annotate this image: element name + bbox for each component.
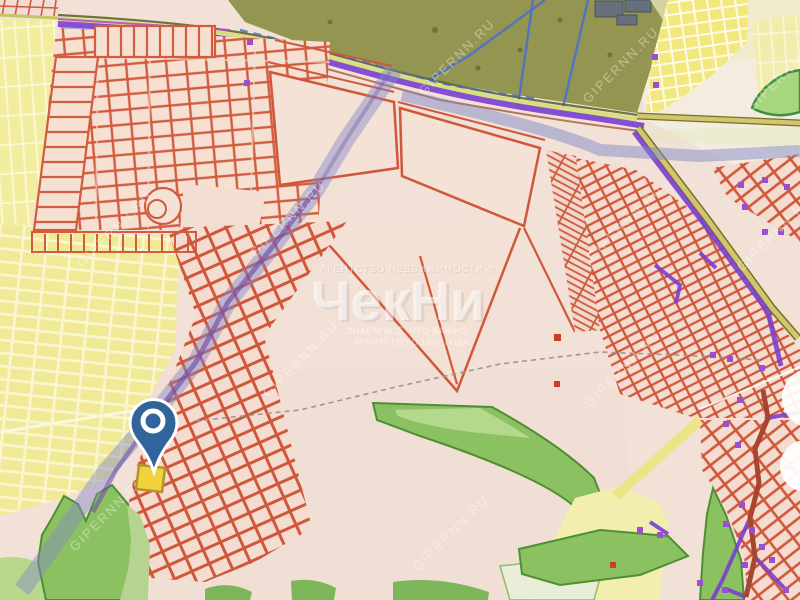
svg-text:ЧекНи: ЧекНи: [311, 269, 484, 332]
svg-text:ЗНАЕМ ВСЁ, ЧТО ВАЖНО: ЗНАЕМ ВСЁ, ЧТО ВАЖНО: [347, 326, 468, 336]
svg-text:АГЕНТСТВО С 1997 ГОДА: АГЕНТСТВО С 1997 ГОДА: [354, 337, 469, 347]
